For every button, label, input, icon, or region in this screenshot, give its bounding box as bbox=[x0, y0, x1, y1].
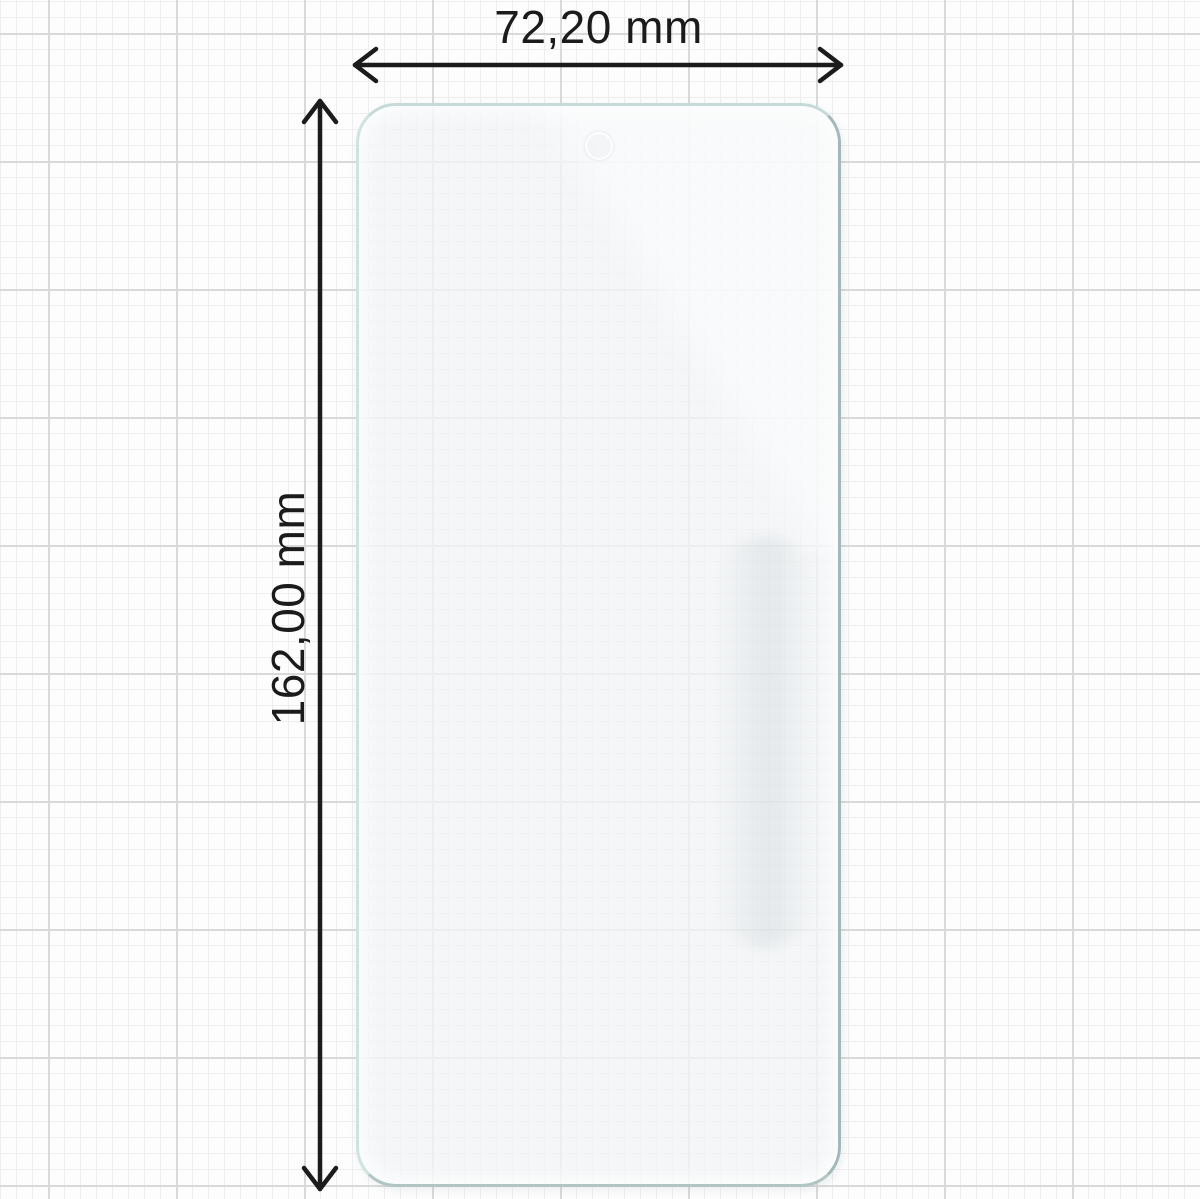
grid-background: 72,20 mm 162,00 mm bbox=[0, 0, 1200, 1199]
width-dimension-label: 72,20 mm bbox=[356, 1, 841, 53]
film-reflection-shade bbox=[717, 537, 812, 947]
width-dimension-arrow bbox=[355, 49, 841, 81]
height-dimension-label: 162,00 mm bbox=[262, 448, 314, 768]
camera-hole-cutout bbox=[585, 132, 613, 160]
film-reflection-highlight bbox=[509, 103, 841, 553]
screen-protector-film bbox=[356, 103, 841, 1187]
